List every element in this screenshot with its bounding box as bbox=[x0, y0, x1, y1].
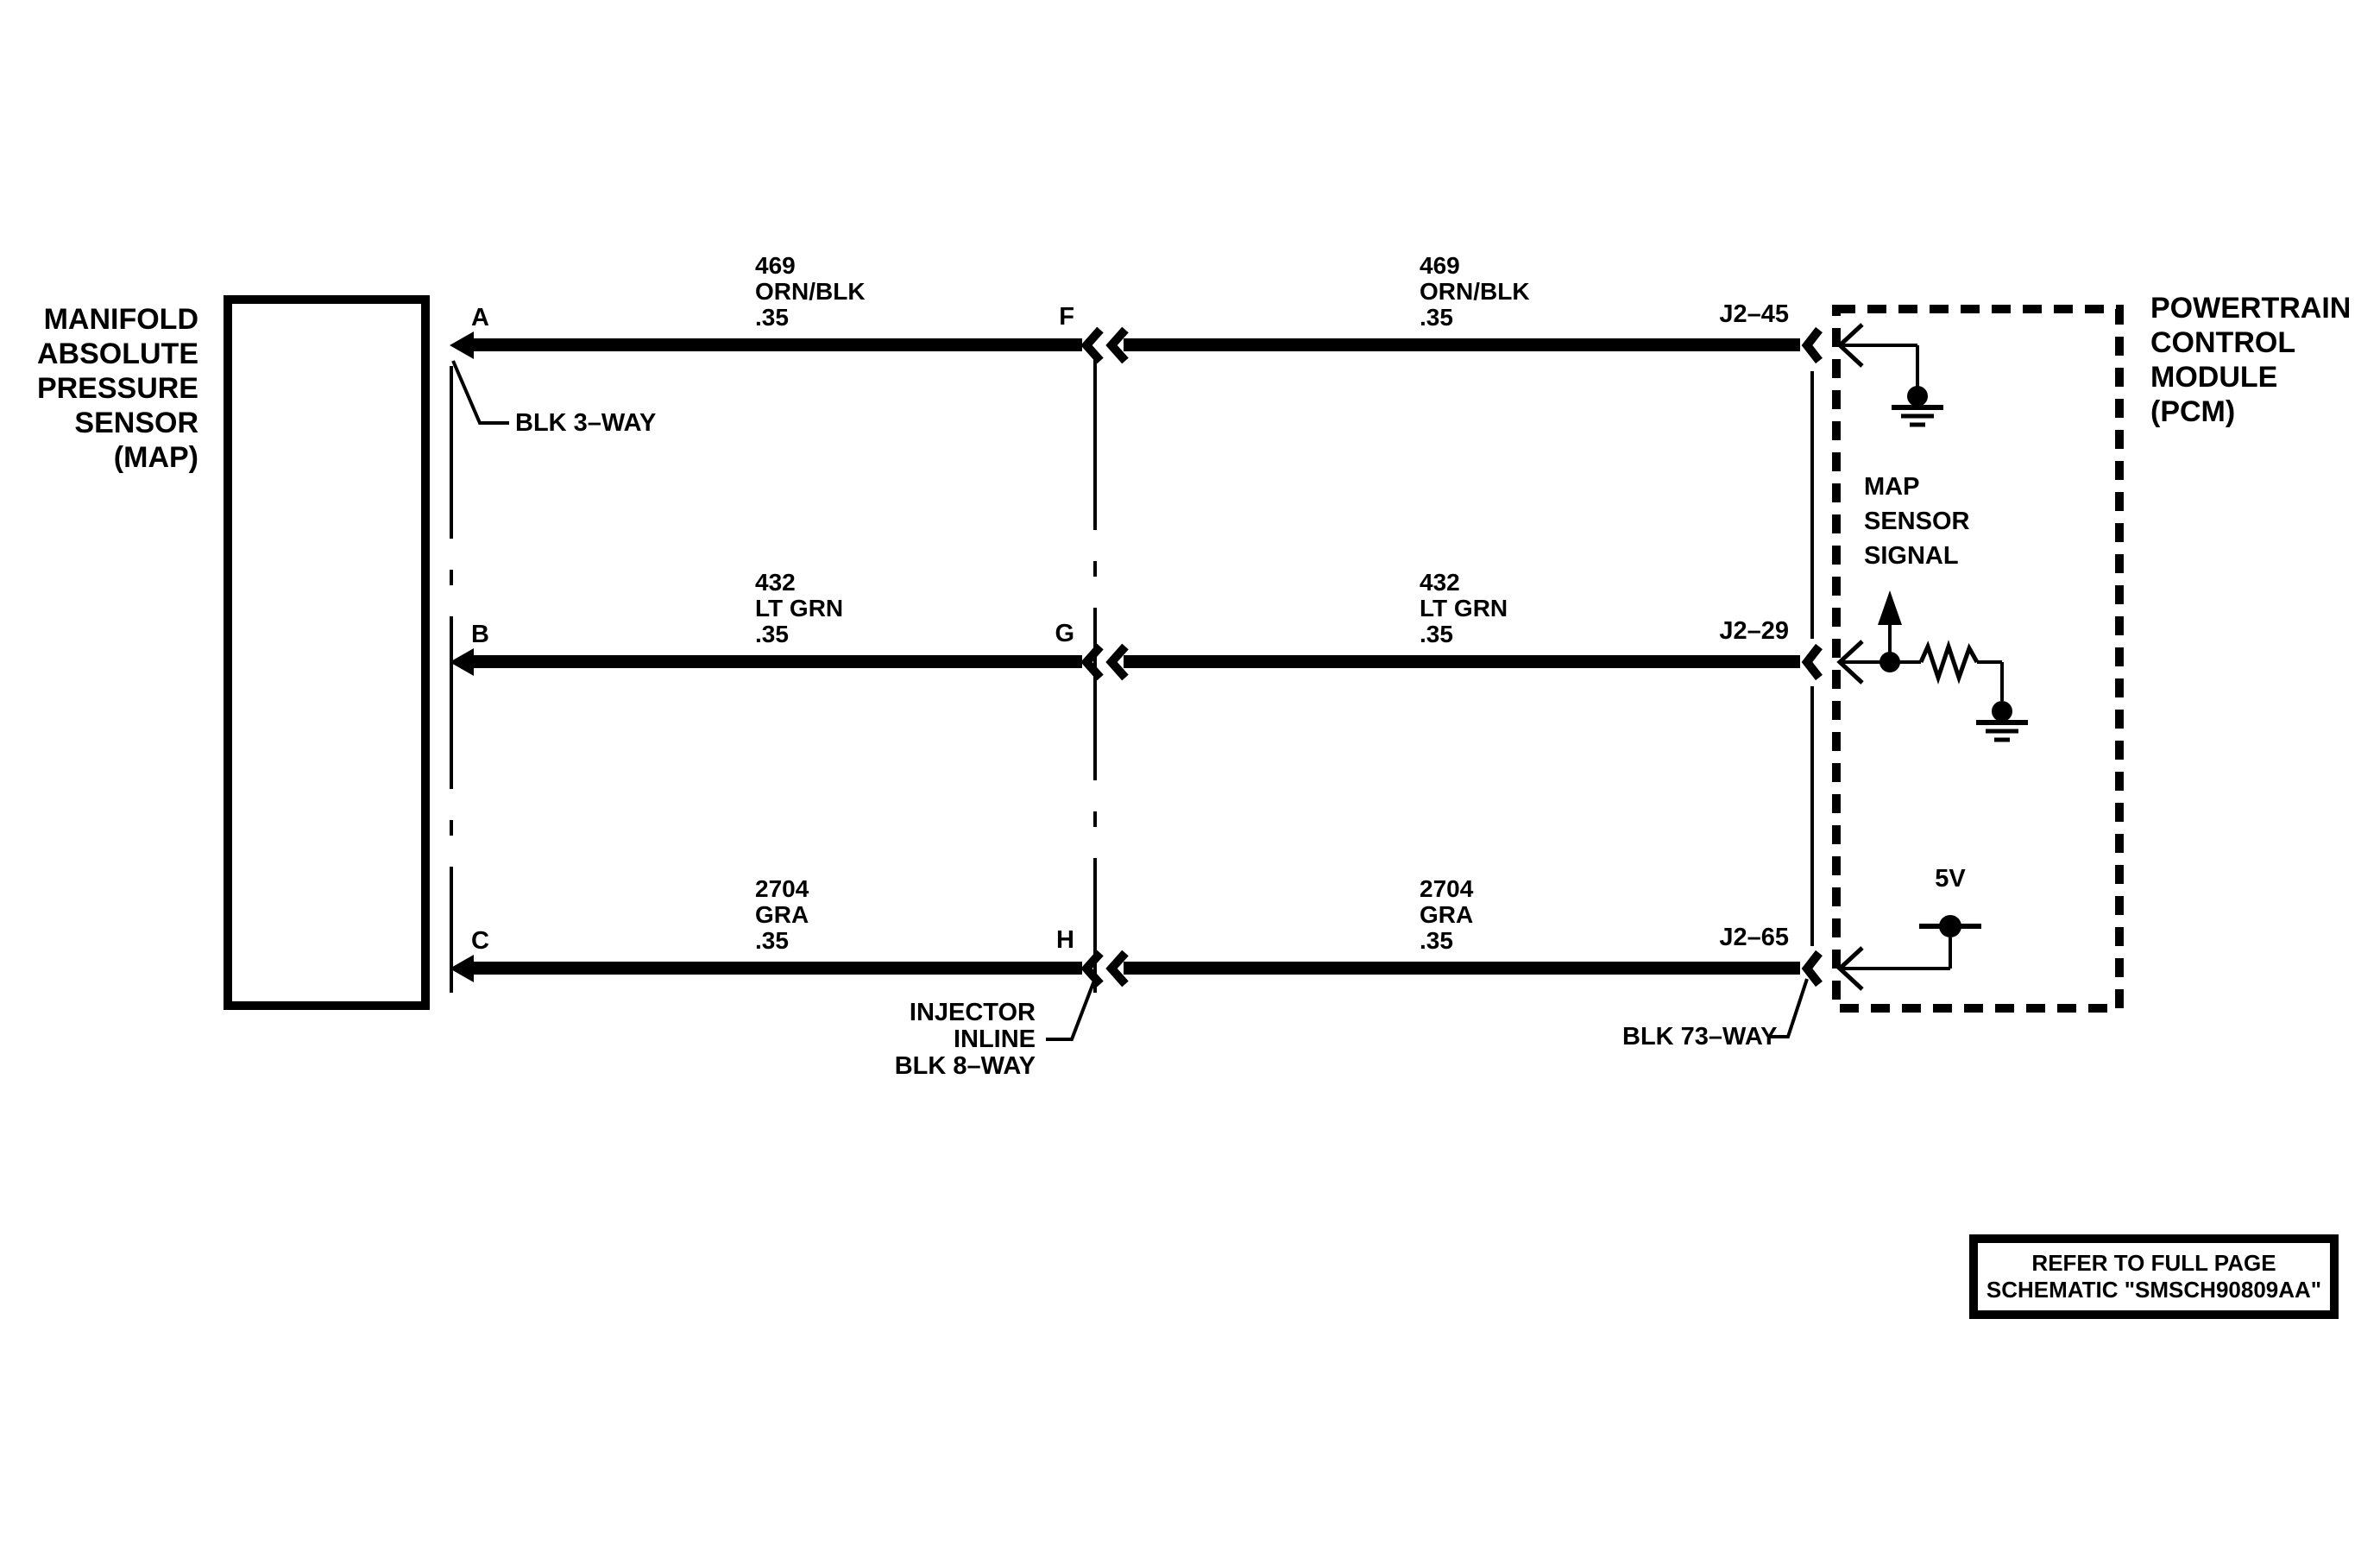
supply-voltage-label: 5V bbox=[1919, 865, 1981, 893]
map-sensor-box bbox=[228, 300, 425, 1006]
wire-c-left-info: 2704 GRA .35 bbox=[755, 876, 809, 954]
pcm-label: POWERTRAIN CONTROL MODULE (PCM) bbox=[2150, 291, 2351, 429]
wire-gauge: .35 bbox=[755, 622, 843, 647]
map-sensor-label-line: ABSOLUTE bbox=[0, 337, 198, 371]
pcm-connector-label: BLK 73–WAY bbox=[1622, 1023, 1762, 1051]
inline-connector-label-line: INJECTOR bbox=[863, 1000, 1036, 1026]
wire-b-right-info: 432 LT GRN .35 bbox=[1420, 570, 1508, 647]
map-sensor-signal-label-line: SIGNAL bbox=[1864, 539, 1969, 573]
map-sensor-label: MANIFOLD ABSOLUTE PRESSURE SENSOR (MAP) bbox=[0, 302, 198, 475]
wire-b-right-segment bbox=[1124, 655, 1800, 668]
map-sensor-label-line: PRESSURE bbox=[0, 371, 198, 406]
wire-gauge: .35 bbox=[1420, 622, 1508, 647]
circuit-number: 432 bbox=[1420, 570, 1508, 596]
map-sensor-label-line: (MAP) bbox=[0, 440, 198, 475]
sensor-connector-leader-line bbox=[453, 361, 509, 423]
wire-b-signal-circuit bbox=[1840, 590, 2028, 740]
circuit-number: 2704 bbox=[1420, 876, 1473, 902]
inline-connector-leader-line bbox=[1046, 981, 1094, 1039]
reference-note-line: SCHEMATIC "SMSCH90809AA" bbox=[1986, 1277, 2321, 1303]
wire-a-right-info: 469 ORN/BLK .35 bbox=[1420, 253, 1530, 331]
inline-connector-label-line: BLK 8–WAY bbox=[863, 1053, 1036, 1080]
ground-icon bbox=[1892, 407, 1943, 425]
ground-icon bbox=[1976, 723, 2028, 740]
wire-a-left-segment bbox=[469, 338, 1082, 351]
wire-c-left-segment bbox=[469, 962, 1082, 975]
sensor-pin-c: C bbox=[471, 927, 489, 956]
map-sensor-label-line: SENSOR bbox=[0, 406, 198, 440]
inline-pin-g: G bbox=[1023, 620, 1074, 648]
wire-b-inline-break-chevrons-icon bbox=[1086, 647, 1125, 678]
pcm-label-line: MODULE bbox=[2150, 360, 2351, 394]
pcm-label-line: POWERTRAIN bbox=[2150, 291, 2351, 325]
wire-c-supply-circuit bbox=[1840, 915, 1981, 969]
map-sensor-signal-label: MAP SENSOR SIGNAL bbox=[1864, 470, 1969, 573]
wire-color: ORN/BLK bbox=[1420, 279, 1530, 305]
wire-c-pcm-end-chevron-icon bbox=[1807, 953, 1819, 984]
wire-a bbox=[450, 325, 1943, 425]
sensor-pin-a: A bbox=[471, 304, 489, 332]
circuit-number: 2704 bbox=[755, 876, 809, 902]
inline-pin-f: F bbox=[1023, 303, 1074, 331]
wire-a-pcm-end-chevron-icon bbox=[1807, 330, 1819, 361]
wire-c-right-segment bbox=[1124, 962, 1800, 975]
wire-gauge: .35 bbox=[1420, 305, 1530, 331]
inline-connector-label-line: INLINE bbox=[863, 1026, 1036, 1053]
reference-note-line: REFER TO FULL PAGE bbox=[2031, 1250, 2276, 1277]
pcm-label-line: CONTROL bbox=[2150, 325, 2351, 360]
wire-c-right-info: 2704 GRA .35 bbox=[1420, 876, 1473, 954]
wire-color: LT GRN bbox=[1420, 596, 1508, 622]
wire-color: LT GRN bbox=[755, 596, 843, 622]
wire-b-left-segment bbox=[469, 655, 1082, 668]
wire-gauge: .35 bbox=[1420, 928, 1473, 954]
schematic-linework bbox=[0, 0, 2380, 1565]
wire-b bbox=[450, 590, 2028, 740]
circuit-number: 469 bbox=[1420, 253, 1530, 279]
sensor-connector-label: BLK 3–WAY bbox=[515, 409, 656, 438]
wire-gauge: .35 bbox=[755, 305, 866, 331]
resistor-icon bbox=[1921, 647, 1977, 678]
map-sensor-signal-label-line: MAP bbox=[1864, 470, 1969, 504]
inline-connector-label: INJECTOR INLINE BLK 8–WAY bbox=[863, 1000, 1036, 1080]
wire-b-left-info: 432 LT GRN .35 bbox=[755, 570, 843, 647]
pcm-label-line: (PCM) bbox=[2150, 394, 2351, 429]
reference-note-box: REFER TO FULL PAGE SCHEMATIC "SMSCH90809… bbox=[1969, 1234, 2339, 1319]
map-sensor-signal-label-line: SENSOR bbox=[1864, 504, 1969, 539]
signal-up-arrow-icon bbox=[1878, 590, 1902, 625]
wire-color: GRA bbox=[755, 902, 809, 928]
circuit-number: 432 bbox=[755, 570, 843, 596]
map-sensor-label-line: MANIFOLD bbox=[0, 302, 198, 337]
wire-color: GRA bbox=[1420, 902, 1473, 928]
pcm-pin-j2-45: J2–45 bbox=[1659, 300, 1789, 329]
wire-a-right-segment bbox=[1124, 338, 1800, 351]
wire-a-inline-break-chevrons-icon bbox=[1086, 330, 1125, 361]
voltage-terminal-icon bbox=[1939, 915, 1961, 937]
pcm-pin-j2-65: J2–65 bbox=[1659, 924, 1789, 952]
wiring-diagram-canvas: MANIFOLD ABSOLUTE PRESSURE SENSOR (MAP) … bbox=[0, 0, 2380, 1565]
wire-c-inline-break-chevrons-icon bbox=[1086, 953, 1125, 984]
wire-a-left-info: 469 ORN/BLK .35 bbox=[755, 253, 866, 331]
wire-gauge: .35 bbox=[755, 928, 809, 954]
inline-pin-h: H bbox=[1023, 926, 1074, 955]
pcm-box bbox=[1836, 309, 2119, 1008]
wire-color: ORN/BLK bbox=[755, 279, 866, 305]
pcm-pin-j2-29: J2–29 bbox=[1659, 617, 1789, 646]
sensor-pin-b: B bbox=[471, 621, 489, 649]
wire-b-pcm-end-chevron-icon bbox=[1807, 647, 1819, 678]
circuit-number: 469 bbox=[755, 253, 866, 279]
